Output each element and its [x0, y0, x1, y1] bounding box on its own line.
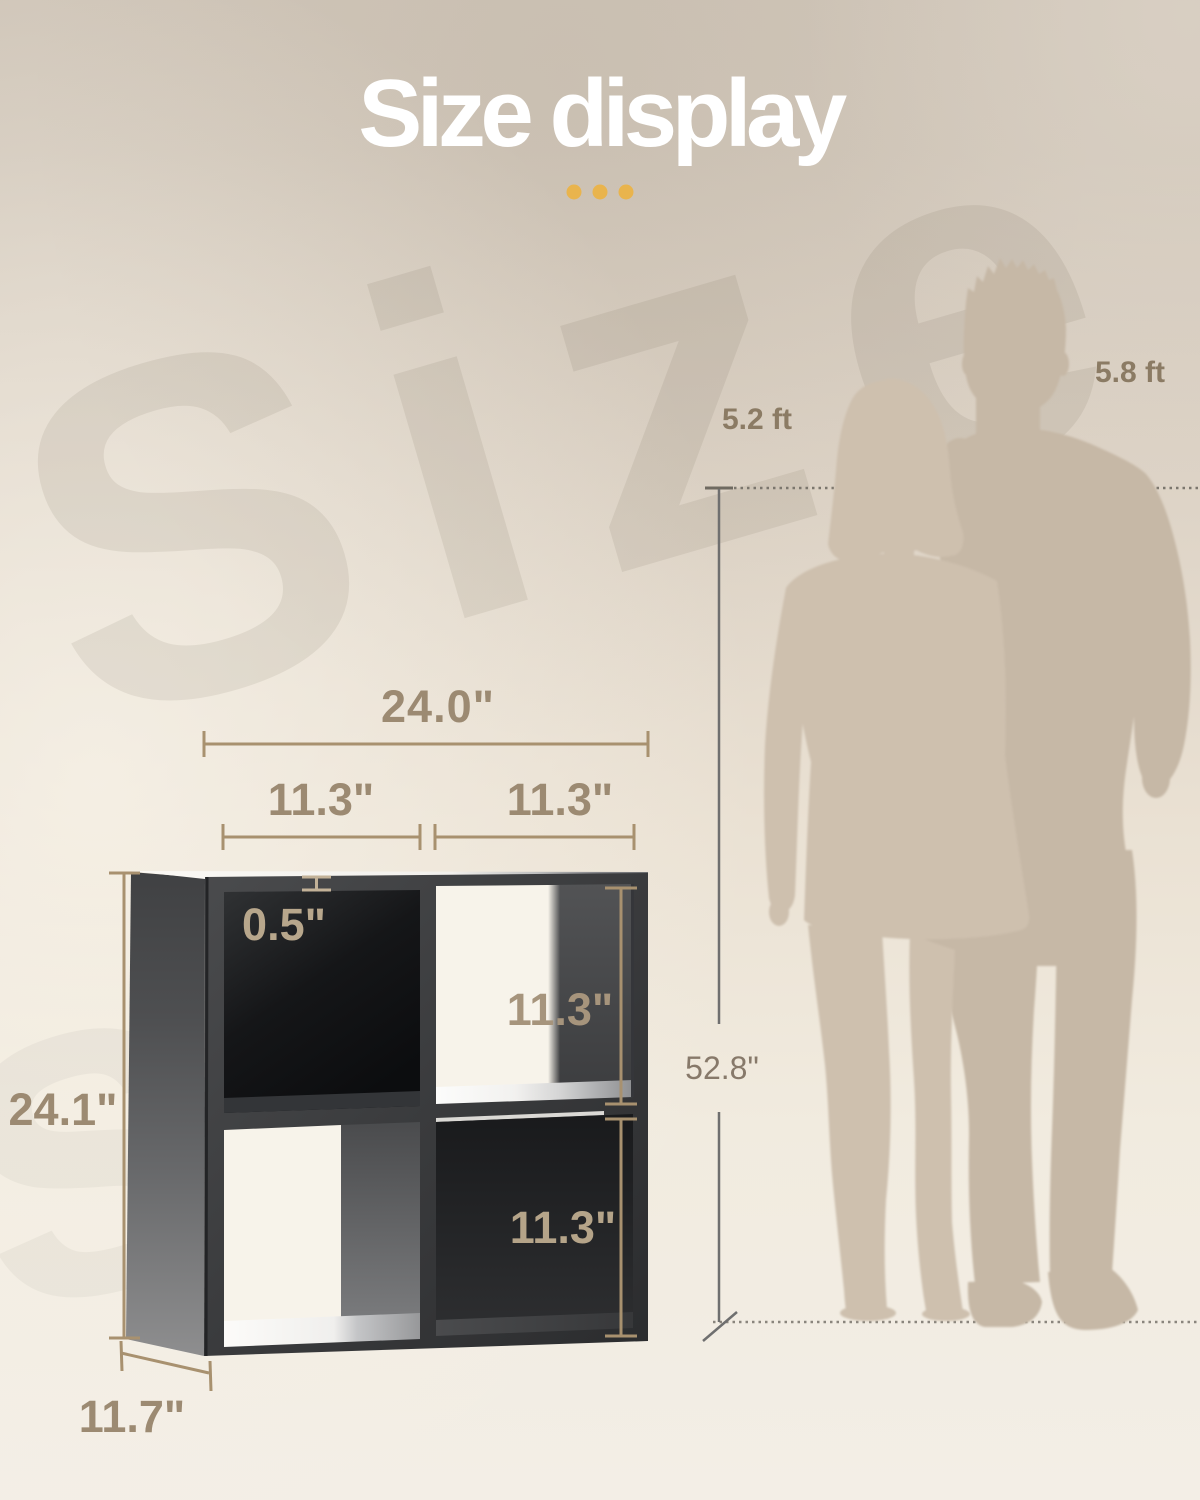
- svg-text:11.7": 11.7": [79, 1391, 185, 1442]
- svg-text:52.8": 52.8": [685, 1050, 759, 1086]
- svg-text:0.5": 0.5": [242, 899, 326, 950]
- svg-text:11.3": 11.3": [507, 774, 613, 825]
- svg-text:11.3": 11.3": [268, 774, 374, 825]
- svg-text:24.1": 24.1": [9, 1084, 118, 1135]
- svg-text:5.8 ft: 5.8 ft: [1095, 356, 1165, 389]
- svg-text:5.2 ft: 5.2 ft: [722, 403, 792, 436]
- svg-text:24.0": 24.0": [381, 681, 495, 732]
- svg-text:11.3": 11.3": [510, 1202, 616, 1253]
- svg-text:11.3": 11.3": [507, 984, 613, 1035]
- svg-text:Size display: Size display: [358, 60, 847, 167]
